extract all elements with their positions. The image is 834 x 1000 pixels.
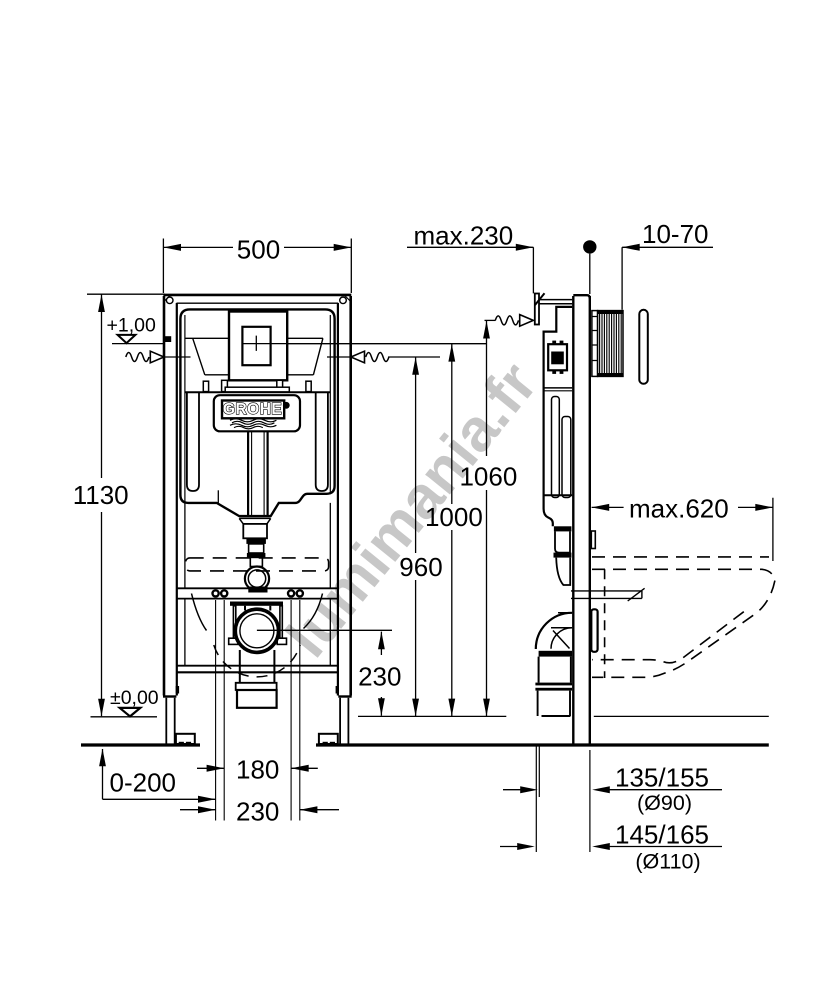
svg-text:230: 230 bbox=[358, 662, 401, 692]
svg-text:max.230: max.230 bbox=[414, 221, 514, 251]
svg-text:+1,00: +1,00 bbox=[107, 315, 156, 337]
svg-text:0-200: 0-200 bbox=[110, 768, 177, 798]
svg-text:960: 960 bbox=[399, 552, 442, 582]
svg-text:180: 180 bbox=[236, 755, 279, 785]
svg-text:230: 230 bbox=[236, 797, 279, 827]
svg-text:1060: 1060 bbox=[459, 462, 517, 492]
svg-text:(Ø90): (Ø90) bbox=[637, 791, 692, 815]
svg-text:500: 500 bbox=[237, 235, 280, 265]
svg-text:1000: 1000 bbox=[425, 502, 483, 532]
svg-text:1130: 1130 bbox=[73, 480, 129, 510]
svg-text:GROHE: GROHE bbox=[223, 401, 282, 418]
svg-text:(Ø110): (Ø110) bbox=[635, 850, 700, 874]
svg-text:±0,00: ±0,00 bbox=[110, 687, 159, 709]
svg-text:145/165: 145/165 bbox=[615, 820, 709, 850]
svg-text:max.620: max.620 bbox=[629, 494, 729, 524]
svg-text:135/155: 135/155 bbox=[615, 763, 709, 793]
svg-text:10-70: 10-70 bbox=[642, 219, 709, 249]
